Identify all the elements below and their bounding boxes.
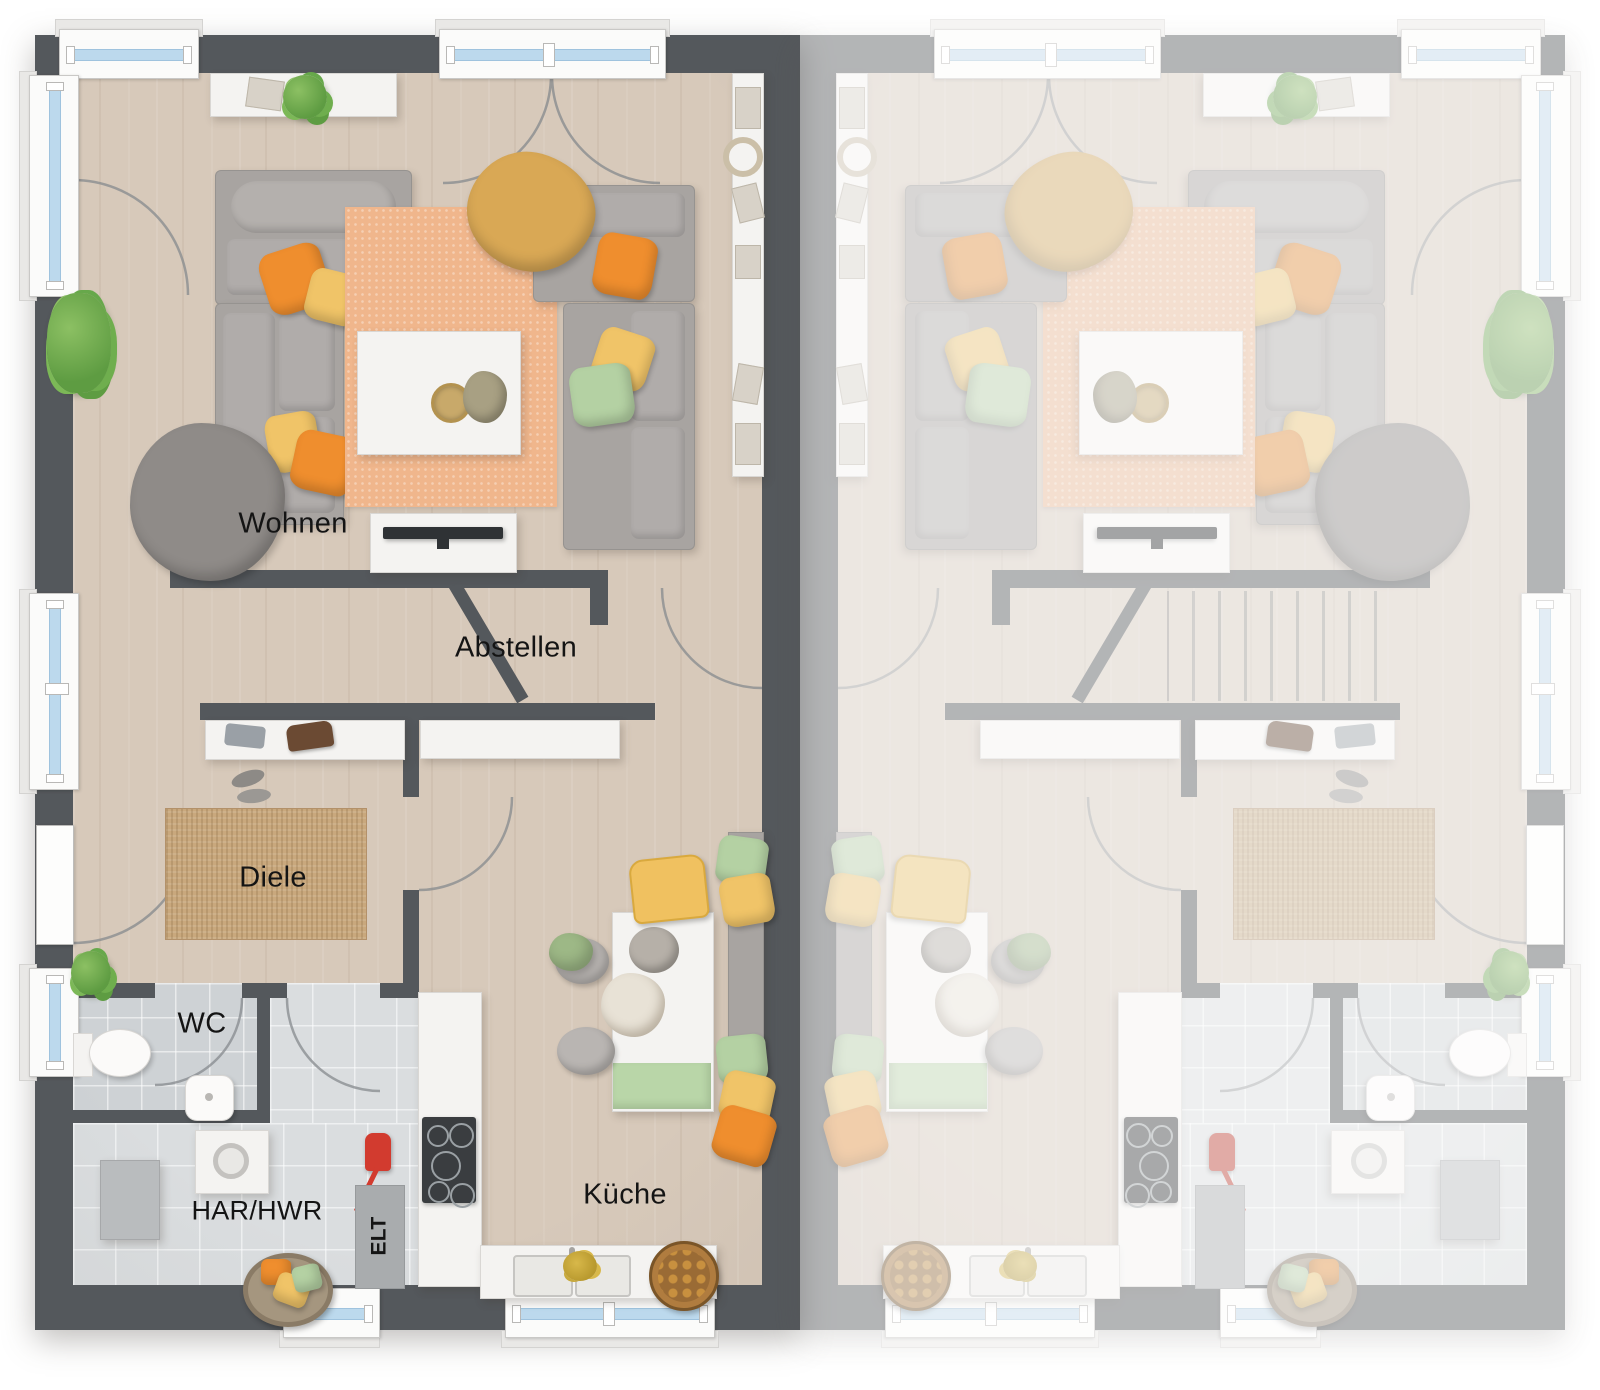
hwr-corridor-tile-floor: [270, 983, 418, 1123]
burner-2: [449, 1123, 474, 1148]
book-decor: [1315, 77, 1355, 112]
pillow-green-1: [567, 361, 637, 429]
floorplan-canvas: Wohnen Abstellen Diele WC HAR/HWR ELT Kü…: [0, 0, 1600, 1390]
pillow-orange-3: [590, 230, 660, 301]
wall-step: [590, 588, 608, 625]
unit-right: Wohnen Abstellen Diele WC HAR/HWR ELT Kü…: [800, 35, 1565, 1330]
wall-wc-divider: [257, 983, 270, 1123]
label-diele: Diele: [239, 864, 307, 893]
storage-cabinet: [420, 720, 620, 759]
snack-plate-decor: [649, 1241, 719, 1311]
table-bowl: [629, 927, 679, 973]
books-5: [839, 423, 865, 465]
tv: [1097, 527, 1217, 539]
burner-5: [450, 1183, 475, 1208]
books-3: [839, 245, 865, 279]
label-wc: WC: [178, 1010, 227, 1039]
snack-plate-decor: [881, 1241, 951, 1311]
duplex-floorplan: Wohnen Abstellen Diele WC HAR/HWR ELT Kü…: [35, 35, 1565, 1330]
tv-stand: [1151, 539, 1163, 549]
tv: [383, 527, 503, 539]
books-3: [735, 245, 761, 279]
bench-pillow-yellow-1: [717, 871, 777, 929]
burner-3: [431, 1151, 461, 1181]
storage-cabinet: [980, 720, 1180, 759]
label-elt: ELT: [369, 1216, 390, 1255]
staircase-treads: [1167, 591, 1400, 701]
utility-cabinet: [100, 1160, 160, 1240]
table-flowers: [601, 973, 665, 1037]
plant-left-wall: [1489, 293, 1553, 393]
pillow-green-1: [963, 361, 1033, 429]
yellow-flowers-decor: [1003, 1251, 1037, 1281]
rug-hall: [1233, 808, 1435, 940]
bench-pillow-yellow-1: [823, 871, 883, 929]
stool-2: [985, 1027, 1043, 1075]
table-flowers: [935, 973, 999, 1037]
wall-wc-divider: [1330, 983, 1343, 1123]
books-5: [735, 423, 761, 465]
dried-plant-decor: [1093, 371, 1137, 423]
sofa-right-back-2: [631, 427, 685, 539]
books-1: [735, 87, 761, 129]
table-runner-green: [613, 1063, 711, 1109]
burner-1: [1151, 1125, 1173, 1147]
utility-cabinet: [1440, 1160, 1500, 1240]
plant-sideboard: [283, 75, 327, 119]
vacuum-body: [365, 1133, 391, 1171]
dried-plant-decor: [463, 371, 507, 423]
plant-wc: [1489, 951, 1529, 995]
wreath-decor: [723, 137, 763, 177]
hwr-corridor-tile-floor: [1182, 983, 1330, 1123]
yellow-flowers-decor: [563, 1251, 597, 1281]
sofa-right-back-2: [915, 427, 969, 539]
wall-wc-top-c: [1181, 983, 1220, 998]
plant-sideboard: [1273, 75, 1317, 119]
sofa-left-seat-1: [279, 315, 335, 411]
vacuum-body: [1209, 1133, 1235, 1171]
label-har-hwr: HAR/HWR: [191, 1198, 322, 1225]
tv-stand: [437, 539, 449, 549]
wall-kitchen-lower: [1181, 890, 1197, 983]
stool-2: [557, 1027, 615, 1075]
book-decor: [245, 77, 285, 112]
washer-door: [213, 1143, 249, 1179]
table-runner-green: [889, 1063, 987, 1109]
wall-kitchen-lower: [403, 890, 419, 983]
sofa-left-seat-1: [1265, 315, 1321, 411]
wc-sink-drain: [205, 1093, 213, 1101]
wall-wc-hwr: [1330, 1110, 1527, 1123]
wreath-decor: [837, 137, 877, 177]
label-abstellen: Abstellen: [455, 634, 577, 663]
wall-hall-bottom: [200, 703, 655, 720]
burner-5: [1125, 1183, 1150, 1208]
burner-2: [1126, 1123, 1151, 1148]
washer-door: [1351, 1143, 1387, 1179]
plant-wc: [71, 951, 111, 995]
burner-4: [1150, 1181, 1172, 1203]
burner-3: [1139, 1151, 1169, 1181]
cloth-green-stool: [1007, 933, 1051, 971]
burner-1: [427, 1125, 449, 1147]
toilet-bowl: [89, 1029, 151, 1077]
elt-cabinet: [1195, 1185, 1245, 1289]
toilet-bowl: [1449, 1029, 1511, 1077]
books-1: [839, 87, 865, 129]
wall-kitchen-upper: [403, 720, 419, 797]
plant-left-wall: [47, 293, 111, 393]
burner-4: [428, 1181, 450, 1203]
dining-chair-yellow: [890, 853, 972, 925]
keys-decor: [224, 723, 266, 749]
blanket-gray-armchair: [1315, 423, 1470, 581]
wall-wc-hwr: [73, 1110, 270, 1123]
unit-left: Wohnen Abstellen Diele WC HAR/HWR ELT Kü…: [35, 35, 800, 1330]
wall-wc-top-c: [380, 983, 419, 998]
label-kueche: Küche: [583, 1181, 667, 1210]
wall-hall-bottom: [945, 703, 1400, 720]
dining-chair-yellow: [628, 853, 710, 925]
wall-step: [992, 588, 1010, 625]
cloth-green-stool: [549, 933, 593, 971]
wc-sink-drain: [1387, 1093, 1395, 1101]
keys-decor: [1334, 723, 1376, 749]
pillow-orange-3: [940, 230, 1010, 301]
label-wohnen: Wohnen: [238, 510, 347, 539]
blanket-gray-armchair: [130, 423, 285, 581]
table-bowl: [921, 927, 971, 973]
